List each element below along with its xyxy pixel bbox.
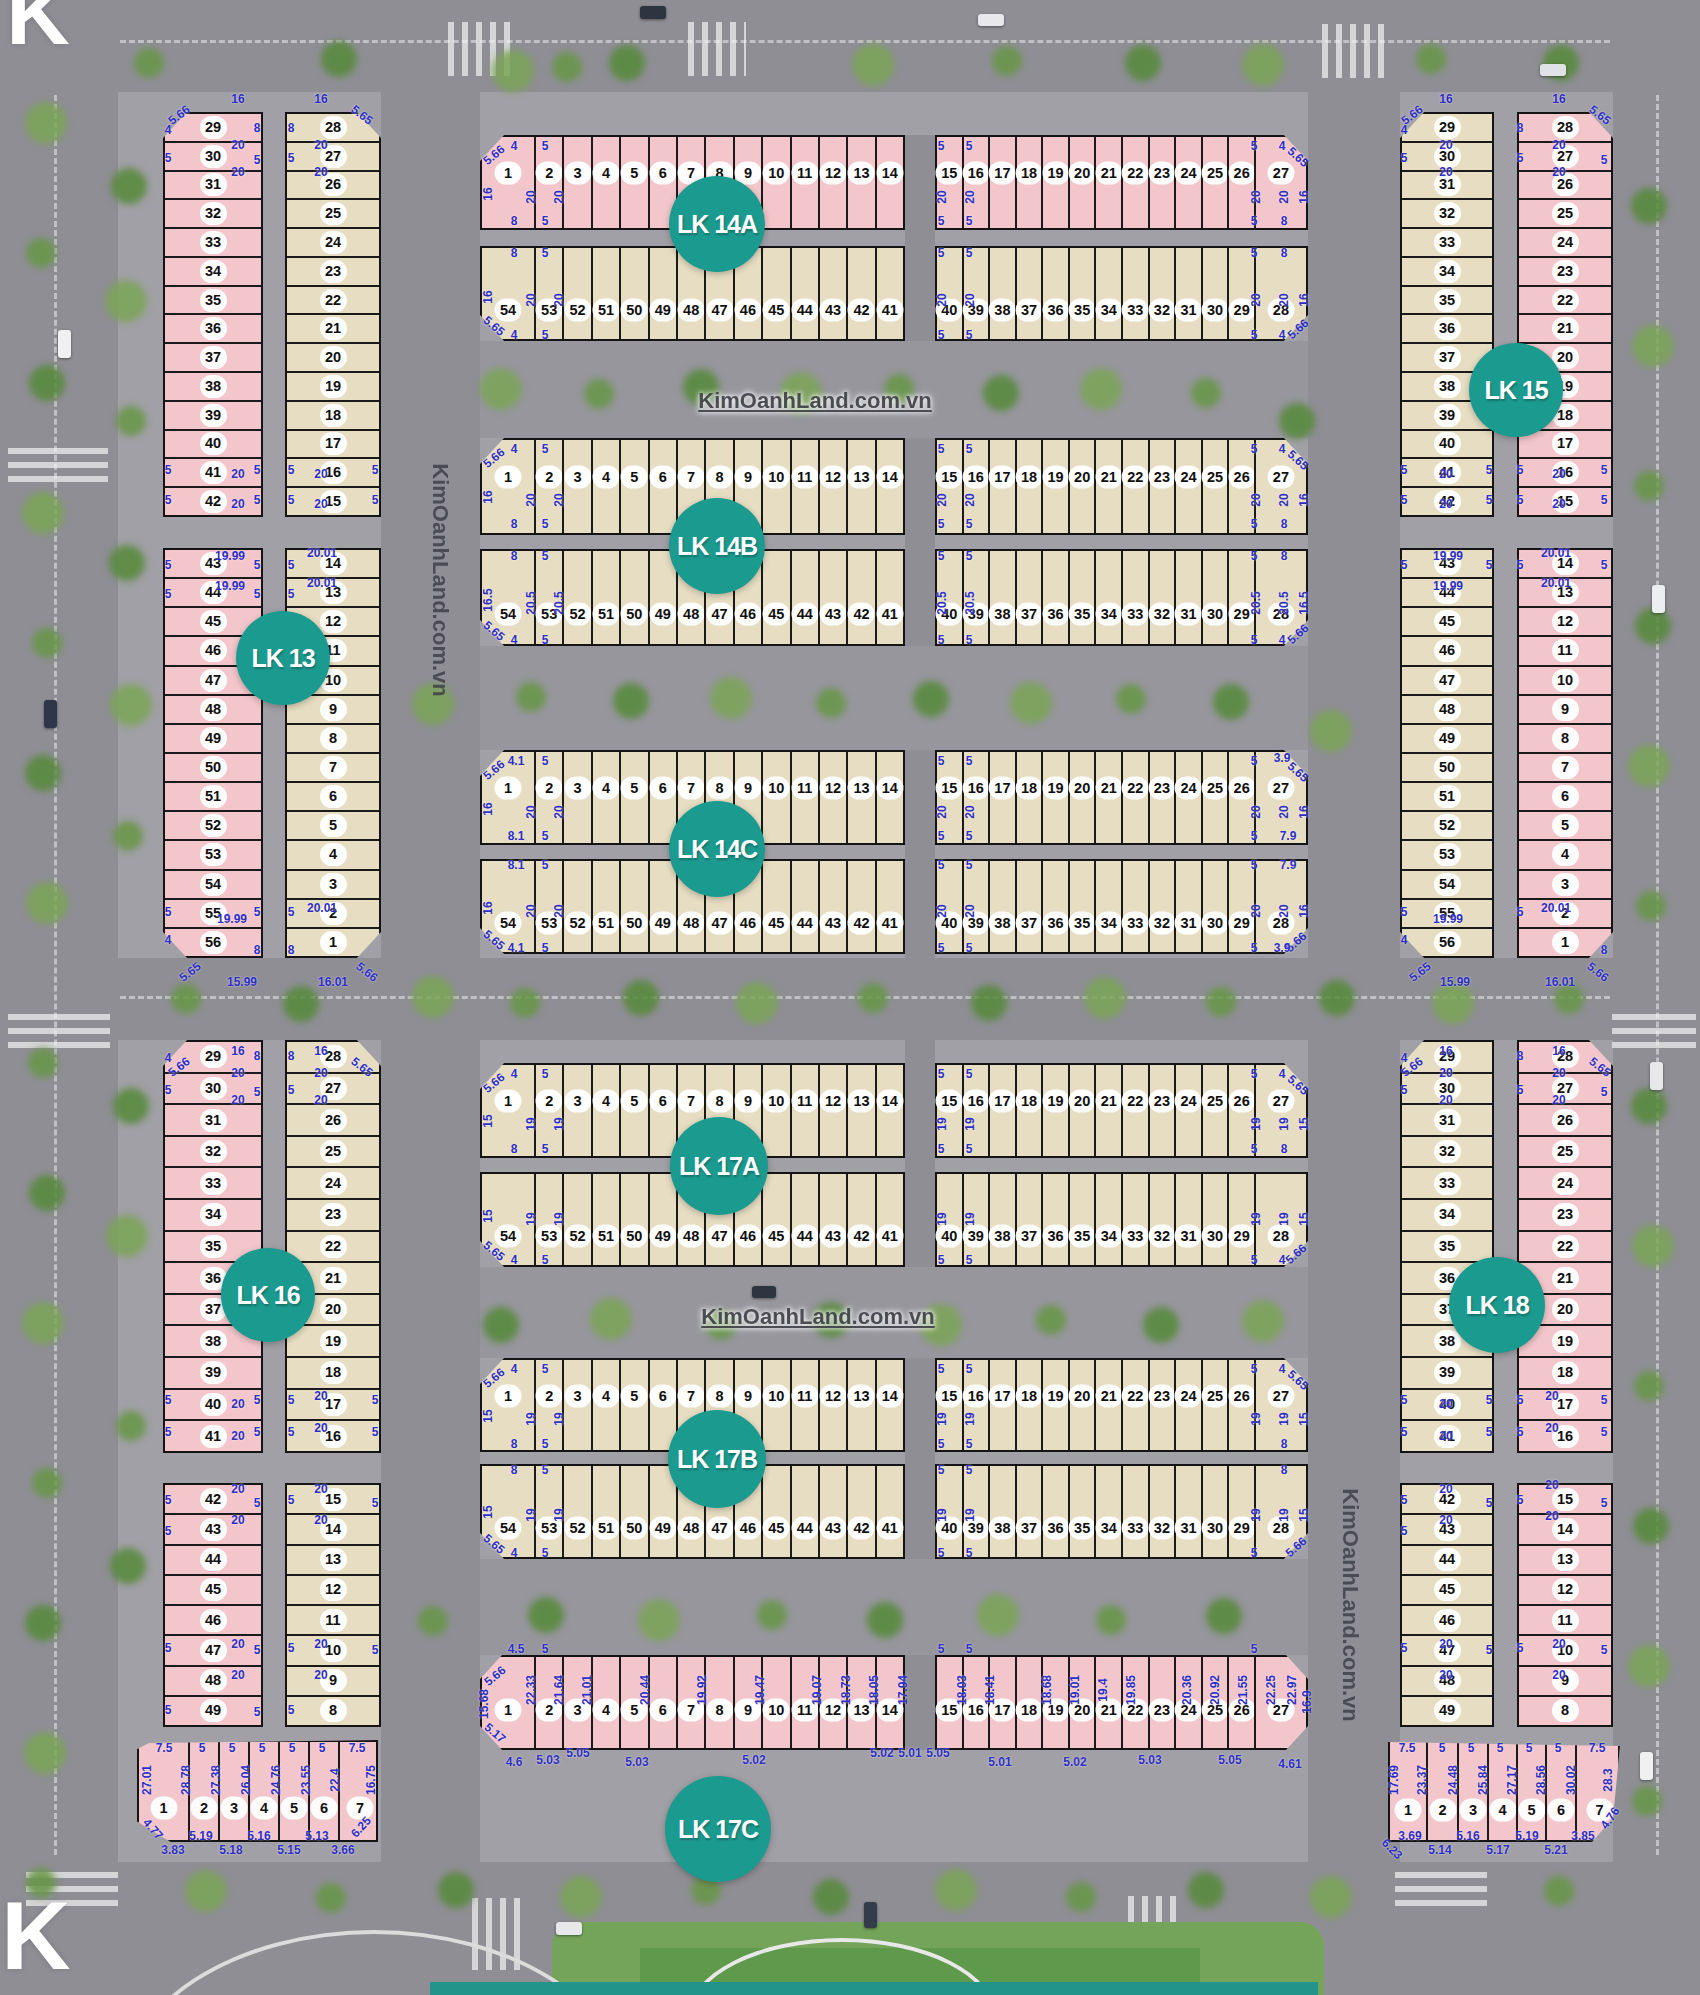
nw-block-column: 2827262524232221201918171615 bbox=[285, 112, 381, 517]
lot-number: 37 bbox=[1016, 911, 1043, 934]
dim-label: 5 bbox=[1555, 1741, 1562, 1755]
lot-43: 43 bbox=[165, 550, 261, 577]
lot-number: 34 bbox=[1095, 603, 1122, 626]
lot-37: 37 bbox=[1015, 551, 1042, 644]
dim-label: 15.99 bbox=[1440, 975, 1470, 989]
dim-label: 20 bbox=[552, 805, 566, 818]
dim-label: 5 bbox=[1486, 558, 1493, 572]
lot-number: 20 bbox=[1069, 777, 1096, 800]
lot-36: 36 bbox=[1041, 1466, 1068, 1557]
lot-number: 47 bbox=[706, 911, 733, 934]
dim-label: 8 bbox=[1281, 246, 1288, 260]
lot-number: 45 bbox=[763, 1224, 790, 1247]
lot-number: 31 bbox=[1175, 298, 1202, 321]
dim-label: 20 bbox=[314, 1066, 327, 1080]
dim-label: 17.94 bbox=[896, 1675, 910, 1705]
lot-number: 30 bbox=[1202, 298, 1229, 321]
lot-34: 34 bbox=[1094, 248, 1121, 339]
lot-number: 25 bbox=[1202, 466, 1229, 489]
lot-number: 34 bbox=[1095, 911, 1122, 934]
dim-label: 5 bbox=[165, 587, 172, 601]
lot-24: 24 bbox=[1174, 1360, 1201, 1450]
dim-label: 5 bbox=[1251, 829, 1258, 843]
lot-19: 19 bbox=[1041, 137, 1068, 228]
lot-4: 4 bbox=[1519, 839, 1611, 868]
dim-label: 5 bbox=[966, 1463, 973, 1477]
lot-number: 25 bbox=[1552, 202, 1579, 225]
lot-32: 32 bbox=[1148, 248, 1175, 339]
lot-number: 44 bbox=[791, 298, 818, 321]
lot-number: 3 bbox=[221, 1797, 248, 1820]
lot-number: 44 bbox=[200, 1548, 227, 1571]
dim-label: 22.25 bbox=[1264, 1675, 1278, 1705]
block-badge-lk-14a: LK 14A bbox=[669, 176, 765, 272]
dim-label: 5 bbox=[165, 1393, 172, 1407]
lot-17: 17 bbox=[988, 1360, 1015, 1450]
lot-number: 27 bbox=[1267, 1090, 1294, 1113]
lot-number: 21 bbox=[1095, 466, 1122, 489]
lot-number: 8 bbox=[1552, 727, 1579, 750]
lot-30: 30 bbox=[165, 141, 261, 170]
lot-13: 13 bbox=[846, 1360, 874, 1450]
lot-number: 45 bbox=[1434, 1578, 1461, 1601]
dim-label: 5 bbox=[288, 905, 295, 919]
lot-15: 15 bbox=[1519, 1485, 1611, 1513]
lot-3: 3 bbox=[562, 752, 590, 843]
dim-label: 5 bbox=[372, 1393, 379, 1407]
road-middle bbox=[0, 958, 1700, 1040]
lot-50: 50 bbox=[619, 861, 647, 952]
lot-4: 4 bbox=[591, 1065, 619, 1156]
dim-label: 5 bbox=[372, 1496, 379, 1510]
lot-number: 4 bbox=[592, 777, 619, 800]
lot-number: 53 bbox=[536, 1224, 563, 1247]
dim-label: 16 bbox=[1297, 190, 1311, 203]
lot-number: 3 bbox=[1460, 1799, 1487, 1822]
lot-4: 4 bbox=[591, 137, 619, 228]
dim-label: 5.05 bbox=[926, 1746, 949, 1760]
dim-label: 5 bbox=[1401, 151, 1408, 165]
dim-label: 5 bbox=[542, 549, 549, 563]
dim-label: 20 bbox=[1439, 1397, 1452, 1411]
dim-label: 20 bbox=[231, 138, 244, 152]
lot-number: 17 bbox=[1552, 432, 1579, 455]
car bbox=[556, 1922, 582, 1935]
dim-label: 5 bbox=[542, 517, 549, 531]
lot-number: 33 bbox=[1122, 911, 1149, 934]
dim-label: 19.01 bbox=[1068, 1675, 1082, 1705]
lot-44: 44 bbox=[790, 1174, 818, 1265]
lot-number: 46 bbox=[1434, 639, 1461, 662]
dim-label: 20 bbox=[1439, 1066, 1452, 1080]
dim-label: 20 bbox=[1439, 138, 1452, 152]
block-badge-lk-13: LK 13 bbox=[236, 611, 330, 705]
lot-54: 54 bbox=[1402, 869, 1492, 898]
lot-7: 7 bbox=[287, 752, 379, 781]
lot-14: 14 bbox=[875, 137, 903, 228]
lot-23: 23 bbox=[1148, 1065, 1175, 1156]
lot-51: 51 bbox=[1402, 781, 1492, 810]
lot-number: 29 bbox=[200, 116, 227, 139]
lot-number: 25 bbox=[1202, 1090, 1229, 1113]
lot-number: 48 bbox=[1434, 698, 1461, 721]
lot-number: 41 bbox=[876, 911, 903, 934]
dim-label: 19.92 bbox=[695, 1675, 709, 1705]
lot-number: 50 bbox=[1434, 756, 1461, 779]
lot-number: 2 bbox=[536, 777, 563, 800]
lot-number: 16 bbox=[962, 1090, 989, 1113]
lot-number: 6 bbox=[649, 1698, 676, 1721]
dim-label: 16 bbox=[481, 490, 495, 503]
dim-label: 5 bbox=[1251, 442, 1258, 456]
block-badge-lk-17c: LK 17C bbox=[665, 1776, 771, 1882]
lot-number: 21 bbox=[1095, 777, 1122, 800]
dim-label: 5 bbox=[938, 1253, 945, 1267]
lot-number: 6 bbox=[649, 777, 676, 800]
lot-13: 13 bbox=[846, 752, 874, 843]
dim-label: 5 bbox=[1486, 1643, 1493, 1657]
dim-label: 25.84 bbox=[1476, 1765, 1490, 1795]
dim-label: 5 bbox=[1251, 139, 1258, 153]
lot-38: 38 bbox=[988, 861, 1015, 952]
block-badge-lk-14b: LK 14B bbox=[669, 498, 765, 594]
lot-number: 15 bbox=[936, 1090, 963, 1113]
lot-number: 9 bbox=[320, 698, 347, 721]
lot-number: 46 bbox=[734, 298, 761, 321]
lot-24: 24 bbox=[1174, 440, 1201, 533]
car bbox=[1540, 64, 1566, 76]
lot-number: 31 bbox=[1434, 1109, 1461, 1132]
lot-51: 51 bbox=[165, 781, 261, 810]
lot-number: 39 bbox=[962, 1224, 989, 1247]
site-watermark: KimOanhLand.com.vn bbox=[698, 388, 931, 414]
lot-10: 10 bbox=[761, 1065, 789, 1156]
lot-number: 17 bbox=[989, 1385, 1016, 1408]
dim-label: 5 bbox=[1251, 246, 1258, 260]
dim-label: 20 bbox=[314, 1668, 327, 1682]
lot-number: 38 bbox=[989, 911, 1016, 934]
lot-37: 37 bbox=[1015, 248, 1042, 339]
dim-label: 18.41 bbox=[983, 1675, 997, 1705]
dim-label: 20 bbox=[1552, 1668, 1565, 1682]
dim-label: 5 bbox=[372, 1643, 379, 1657]
lot-number: 33 bbox=[200, 231, 227, 254]
dim-label: 5 bbox=[254, 463, 261, 477]
lot-number: 35 bbox=[1069, 1224, 1096, 1247]
dim-label: 5 bbox=[1517, 1493, 1524, 1507]
lot-number: 36 bbox=[1042, 1224, 1069, 1247]
lot-number: 3 bbox=[1552, 873, 1579, 896]
lot-number: 42 bbox=[200, 1488, 227, 1511]
lot-number: 1 bbox=[495, 1385, 522, 1408]
dim-label: 5 bbox=[542, 1362, 549, 1376]
lot-number: 49 bbox=[649, 603, 676, 626]
lot-23: 23 bbox=[1519, 256, 1611, 285]
lot-number: 29 bbox=[200, 1045, 227, 1068]
lot-number: 37 bbox=[1016, 1516, 1043, 1539]
dim-label: 5 bbox=[1601, 558, 1608, 572]
lot-31: 31 bbox=[1174, 1466, 1201, 1557]
lot-number: 37 bbox=[1016, 298, 1043, 321]
dim-label: 16 bbox=[314, 92, 327, 106]
lot-41: 41 bbox=[875, 861, 903, 952]
lot-19: 19 bbox=[1041, 440, 1068, 533]
lot-11: 11 bbox=[790, 1360, 818, 1450]
corner-watermark-letter: K bbox=[6, 0, 70, 65]
lot-number: 19 bbox=[1552, 1330, 1579, 1353]
lot-42: 42 bbox=[846, 1174, 874, 1265]
lot-number: 10 bbox=[763, 162, 790, 185]
lot-number: 12 bbox=[820, 162, 847, 185]
dim-label: 4.1 bbox=[508, 941, 525, 955]
dim-label: 20 bbox=[1439, 1429, 1452, 1443]
lot-number: 22 bbox=[1552, 1235, 1579, 1258]
lot-42: 42 bbox=[846, 248, 874, 339]
dim-label: 5 bbox=[938, 246, 945, 260]
dim-label: 8 bbox=[1281, 214, 1288, 228]
lot-number: 45 bbox=[763, 298, 790, 321]
lot-number: 15 bbox=[936, 162, 963, 185]
lot-number: 5 bbox=[1518, 1799, 1545, 1822]
lot-50: 50 bbox=[619, 248, 647, 339]
dim-label: 4.61 bbox=[1278, 1757, 1301, 1771]
dim-label: 5 bbox=[542, 1067, 549, 1081]
dim-label: 4 bbox=[165, 123, 172, 137]
dim-label: 4 bbox=[511, 442, 518, 456]
dim-label: 20.01 bbox=[1541, 576, 1571, 590]
dim-label: 5 bbox=[289, 1741, 296, 1755]
lot-number: 49 bbox=[649, 1516, 676, 1539]
lot-number: 12 bbox=[820, 1090, 847, 1113]
dim-label: 19 bbox=[1249, 1508, 1263, 1521]
lot-number: 4 bbox=[320, 843, 347, 866]
dim-label: 20 bbox=[231, 1482, 244, 1496]
lot-20: 20 bbox=[287, 342, 379, 371]
lot-34: 34 bbox=[1402, 256, 1492, 285]
dim-label: 16.01 bbox=[1545, 975, 1575, 989]
lot-number: 7 bbox=[678, 1385, 705, 1408]
lot-number: 52 bbox=[564, 911, 591, 934]
lot-number: 31 bbox=[200, 1109, 227, 1132]
dim-label: 19 bbox=[1249, 1412, 1263, 1425]
lot-38: 38 bbox=[988, 1174, 1015, 1265]
lot-number: 44 bbox=[791, 911, 818, 934]
lot-30: 30 bbox=[1201, 861, 1228, 952]
dim-label: 5 bbox=[542, 442, 549, 456]
dim-label: 5.19 bbox=[1515, 1829, 1538, 1843]
lot-number: 35 bbox=[1069, 603, 1096, 626]
lot-number: 9 bbox=[734, 777, 761, 800]
lot-number: 9 bbox=[1552, 698, 1579, 721]
dim-label: 5.01 bbox=[898, 1746, 921, 1760]
lot-number: 22 bbox=[1122, 466, 1149, 489]
dim-label: 5 bbox=[966, 1437, 973, 1451]
lot-38: 38 bbox=[165, 371, 261, 400]
lot-number: 9 bbox=[734, 466, 761, 489]
lot-32: 32 bbox=[1148, 861, 1175, 952]
lot-44: 44 bbox=[1402, 1544, 1492, 1574]
dim-label: 5 bbox=[288, 1641, 295, 1655]
lot-number: 50 bbox=[621, 298, 648, 321]
lot-number: 43 bbox=[820, 1224, 847, 1247]
lot-number: 43 bbox=[820, 603, 847, 626]
lot-number: 12 bbox=[320, 610, 347, 633]
dim-label: 5 bbox=[254, 1643, 261, 1657]
dim-label: 5 bbox=[165, 151, 172, 165]
lot-number: 13 bbox=[1552, 1548, 1579, 1571]
lot-number: 45 bbox=[200, 610, 227, 633]
lot-number: 24 bbox=[320, 231, 347, 254]
lot-number: 41 bbox=[876, 298, 903, 321]
lot-number: 39 bbox=[200, 404, 227, 427]
dim-label: 5 bbox=[542, 246, 549, 260]
dim-label: 16.9 bbox=[1300, 1690, 1314, 1713]
lot-number: 22 bbox=[1122, 1385, 1149, 1408]
block-badge-lk-16: LK 16 bbox=[221, 1248, 315, 1342]
lot-number: 1 bbox=[495, 162, 522, 185]
lot-36: 36 bbox=[1402, 313, 1492, 342]
lot-number: 18 bbox=[1016, 1385, 1043, 1408]
lot-number: 45 bbox=[200, 1578, 227, 1601]
dim-label: 5 bbox=[542, 1437, 549, 1451]
lot-number: 5 bbox=[621, 162, 648, 185]
lot-36: 36 bbox=[1041, 551, 1068, 644]
lot-43: 43 bbox=[818, 861, 846, 952]
lot-number: 46 bbox=[734, 1516, 761, 1539]
lot-number: 8 bbox=[320, 1699, 347, 1722]
lot-number: 14 bbox=[876, 1385, 903, 1408]
lot-number: 45 bbox=[763, 603, 790, 626]
dim-label: 27.01 bbox=[140, 1765, 154, 1795]
dim-label: 5 bbox=[1251, 1142, 1258, 1156]
dim-label: 5 bbox=[372, 1425, 379, 1439]
lot-number: 36 bbox=[200, 317, 227, 340]
lot-number: 47 bbox=[200, 1639, 227, 1662]
lot-number: 27 bbox=[1267, 162, 1294, 185]
dim-label: 20.5 bbox=[524, 591, 538, 614]
dim-label: 20 bbox=[231, 1429, 244, 1443]
dim-label: 5.05 bbox=[1218, 1753, 1241, 1767]
lot-number: 51 bbox=[1434, 785, 1461, 808]
dim-label: 5 bbox=[254, 1085, 261, 1099]
lot-31: 31 bbox=[1174, 861, 1201, 952]
dim-label: 8 bbox=[1281, 1142, 1288, 1156]
dim-label: 5.16 bbox=[1456, 1829, 1479, 1843]
dim-label: 5.19 bbox=[189, 1829, 212, 1843]
lot-38: 38 bbox=[988, 551, 1015, 644]
dim-label: 20 bbox=[1277, 904, 1291, 917]
dim-label: 5 bbox=[1251, 941, 1258, 955]
dim-label: 20 bbox=[935, 190, 949, 203]
lot-number: 19 bbox=[320, 375, 347, 398]
lot-number: 21 bbox=[320, 317, 347, 340]
lot-number: 12 bbox=[320, 1578, 347, 1601]
lot-12: 12 bbox=[818, 1360, 846, 1450]
lot-23: 23 bbox=[1148, 752, 1175, 843]
lot-19: 19 bbox=[1041, 1360, 1068, 1450]
dim-label: 8 bbox=[1517, 121, 1524, 135]
lot-14: 14 bbox=[875, 1360, 903, 1450]
dim-label: 7.5 bbox=[156, 1741, 173, 1755]
lot-number: 32 bbox=[1434, 202, 1461, 225]
dim-label: 19.99 bbox=[1433, 549, 1463, 563]
lot-number: 6 bbox=[1552, 785, 1579, 808]
dim-label: 22.97 bbox=[1285, 1675, 1299, 1705]
lot-number: 3 bbox=[564, 162, 591, 185]
dim-label: 5 bbox=[542, 633, 549, 647]
dim-label: 20 bbox=[231, 497, 244, 511]
lot-number: 19 bbox=[1042, 466, 1069, 489]
dim-label: 5 bbox=[1486, 1393, 1493, 1407]
dim-label: 5 bbox=[1486, 463, 1493, 477]
lot-number: 23 bbox=[1148, 777, 1175, 800]
dim-label: 5 bbox=[254, 1705, 261, 1719]
lot-6: 6 bbox=[648, 440, 676, 533]
dim-label: 5 bbox=[288, 463, 295, 477]
dim-label: 30.02 bbox=[1564, 1765, 1578, 1795]
dim-label: 20 bbox=[314, 1482, 327, 1496]
dim-label: 28.3 bbox=[1601, 1768, 1615, 1791]
dim-label: 5 bbox=[938, 1546, 945, 1560]
lot-38: 38 bbox=[988, 248, 1015, 339]
dim-label: 5 bbox=[938, 1067, 945, 1081]
lane-line bbox=[1656, 95, 1659, 1855]
lot-number: 19 bbox=[1042, 1385, 1069, 1408]
lot-number: 18 bbox=[1016, 1698, 1043, 1721]
dim-label: 16 bbox=[1552, 92, 1565, 106]
dim-label: 5 bbox=[966, 1253, 973, 1267]
dim-label: 8 bbox=[511, 1463, 518, 1477]
dim-label: 20 bbox=[314, 1637, 327, 1651]
dim-label: 15 bbox=[481, 1409, 495, 1422]
lot-32: 32 bbox=[1148, 1466, 1175, 1557]
lot-number: 50 bbox=[621, 603, 648, 626]
dim-label: 4 bbox=[1401, 123, 1408, 137]
dim-label: 5 bbox=[165, 493, 172, 507]
lot-number: 42 bbox=[848, 603, 875, 626]
dim-label: 5 bbox=[199, 1741, 206, 1755]
dim-label: 23.37 bbox=[1415, 1765, 1429, 1795]
lot-25: 25 bbox=[1201, 1360, 1228, 1450]
lot-13: 13 bbox=[287, 1544, 379, 1574]
lot-number: 1 bbox=[320, 931, 347, 954]
crosswalk bbox=[8, 440, 108, 482]
lot-13: 13 bbox=[846, 440, 874, 533]
dim-label: 5.17 bbox=[1486, 1843, 1509, 1857]
lot-44: 44 bbox=[790, 248, 818, 339]
lot-number: 54 bbox=[495, 603, 522, 626]
lot-number: 13 bbox=[848, 1090, 875, 1113]
dim-label: 20.01 bbox=[1541, 901, 1571, 915]
dim-label: 20 bbox=[231, 467, 244, 481]
lot-number: 47 bbox=[200, 669, 227, 692]
lot-19: 19 bbox=[287, 1324, 379, 1356]
lot-24: 24 bbox=[287, 227, 379, 256]
dim-label: 5.01 bbox=[988, 1755, 1011, 1769]
dim-label: 5 bbox=[165, 1524, 172, 1538]
lot-number: 46 bbox=[200, 639, 227, 662]
dim-label: 20 bbox=[935, 493, 949, 506]
lot-1: 1 bbox=[287, 927, 379, 956]
lot-52: 52 bbox=[165, 810, 261, 839]
lot-number: 23 bbox=[1148, 466, 1175, 489]
lot-number: 14 bbox=[876, 777, 903, 800]
lot-number: 26 bbox=[1552, 1109, 1579, 1132]
lot-number: 1 bbox=[495, 1090, 522, 1113]
dim-label: 15 bbox=[481, 1505, 495, 1518]
dim-label: 5 bbox=[1517, 1393, 1524, 1407]
lot-34: 34 bbox=[1402, 1198, 1492, 1230]
